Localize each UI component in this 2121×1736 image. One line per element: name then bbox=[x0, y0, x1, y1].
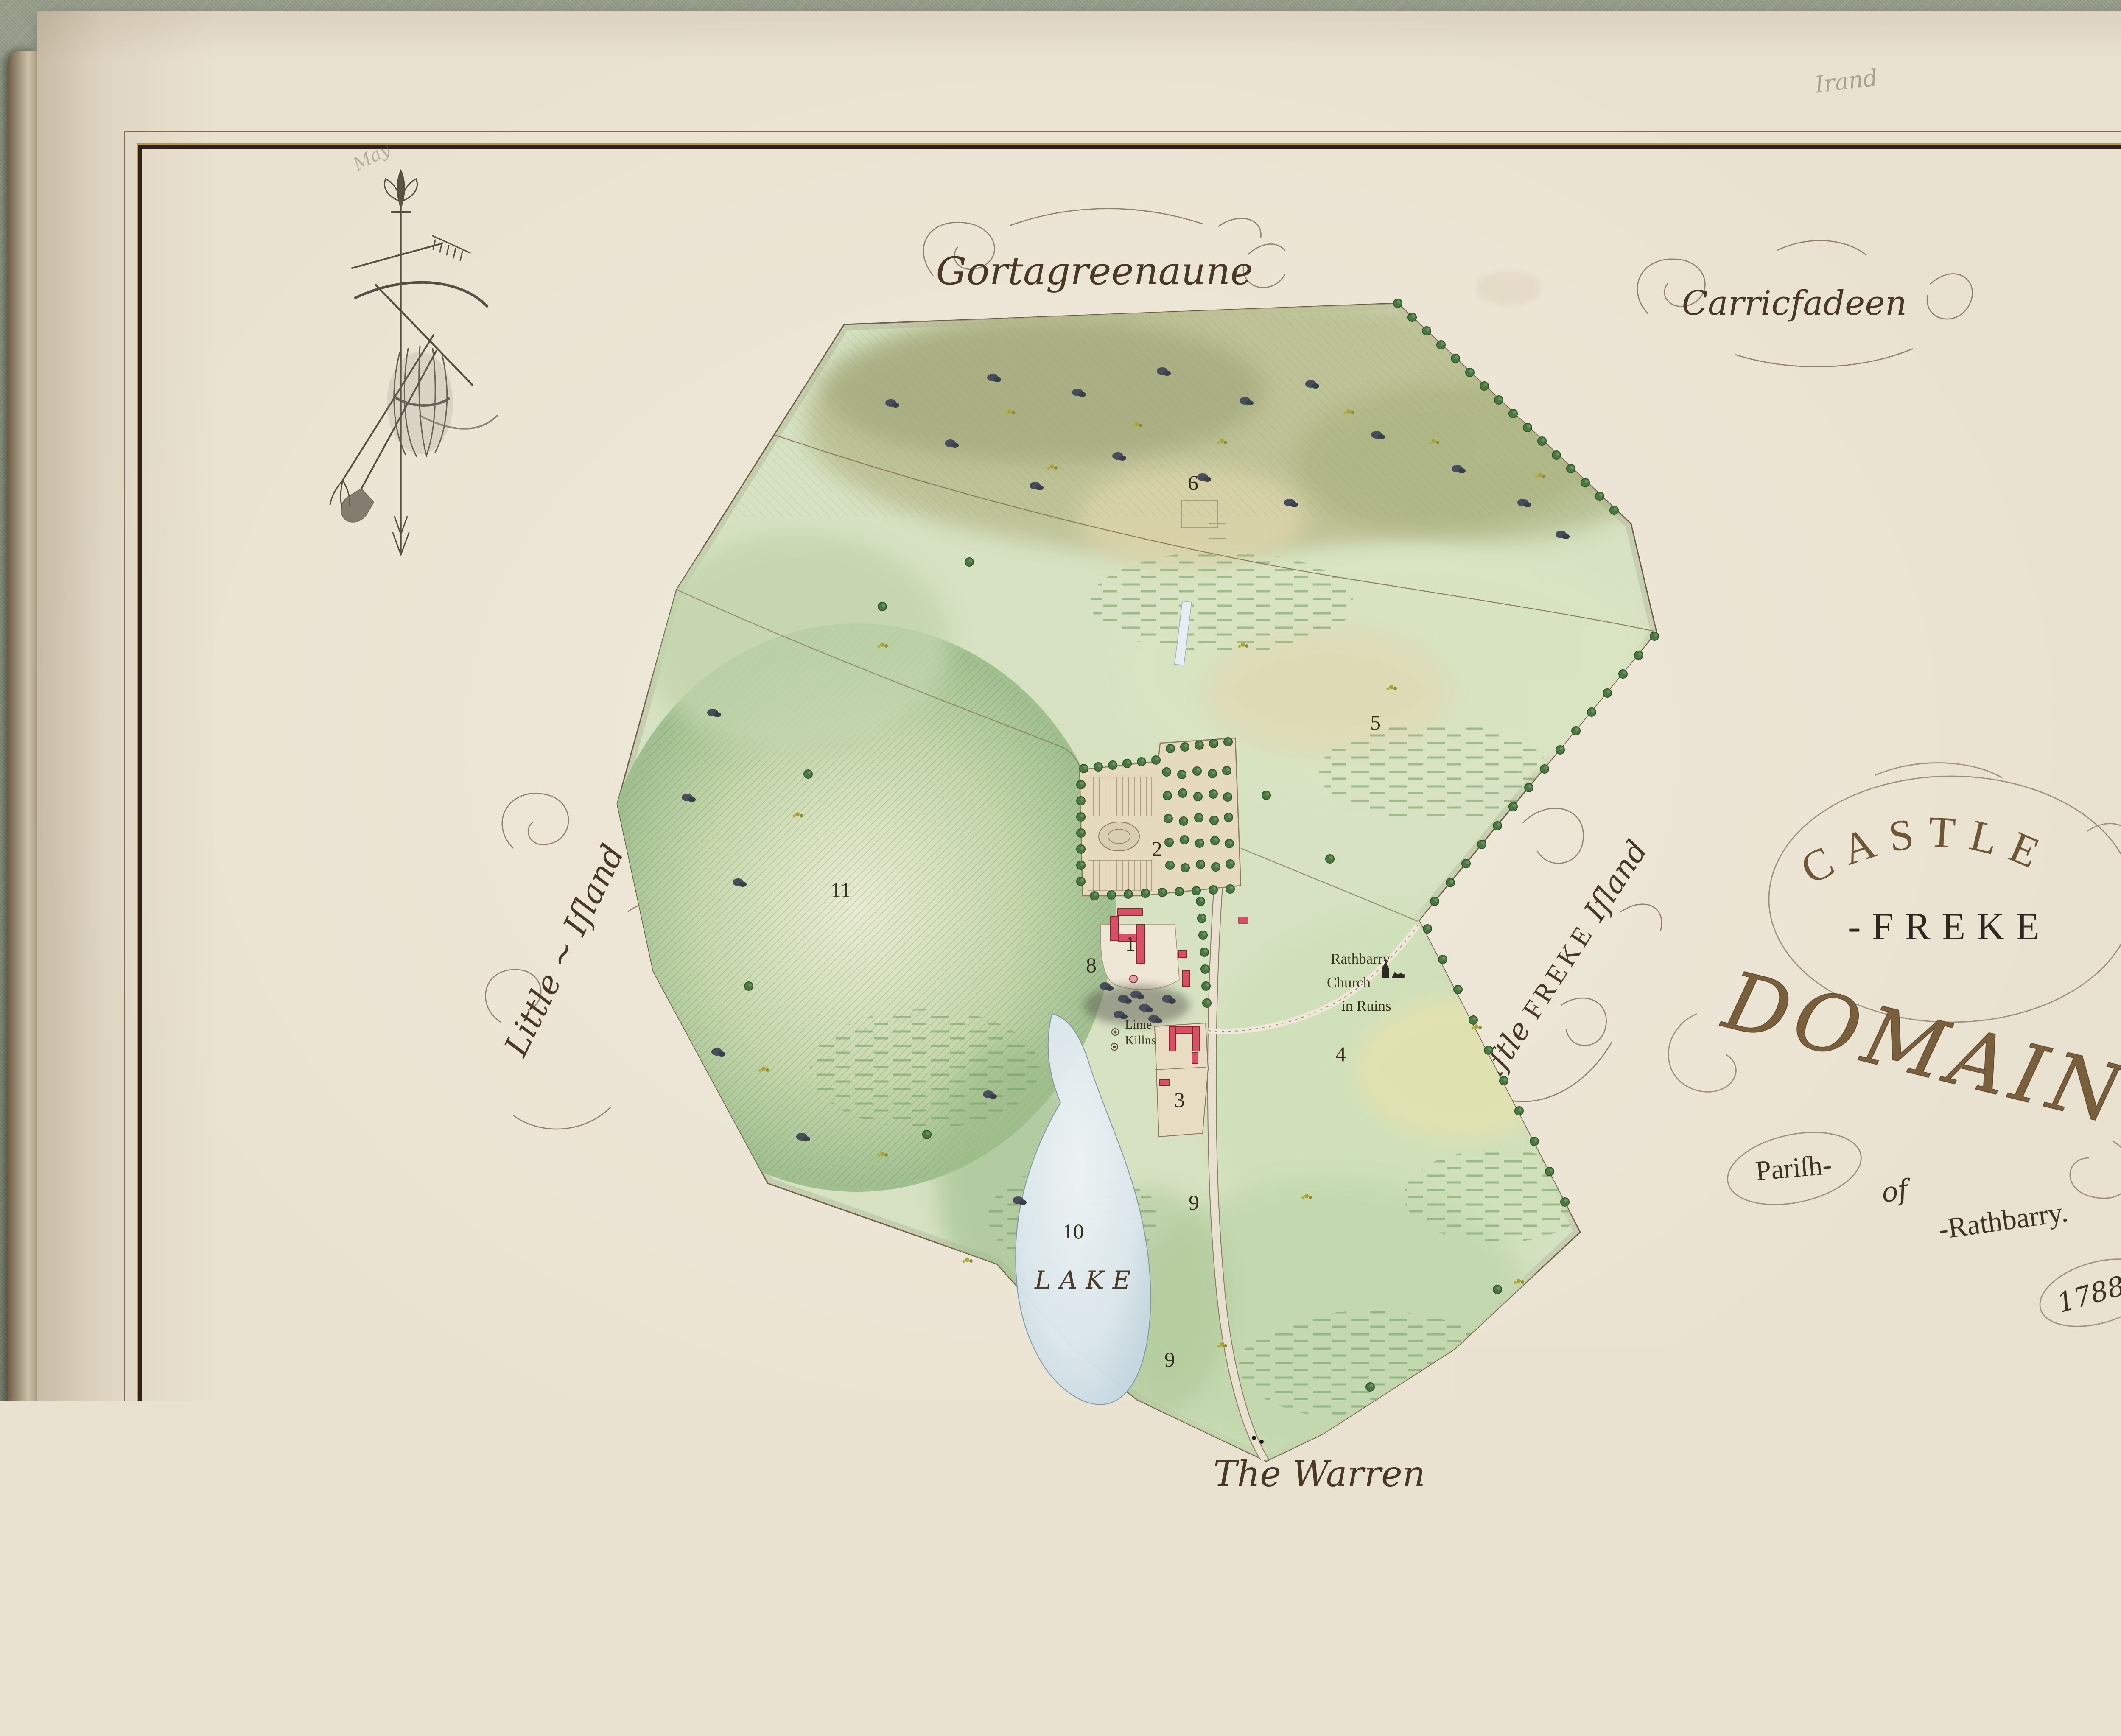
plot-number: 2 bbox=[1152, 837, 1162, 861]
scale-tick: 30 bbox=[452, 1520, 465, 1535]
title-line-domain: DOMAIN bbox=[1715, 953, 2121, 1143]
title-line-rathbarry: -Rathbarry. bbox=[1936, 1195, 2070, 1245]
copyright-text: © 2019 The Dean and Chapter of St. Facht… bbox=[0, 1687, 1961, 1720]
plot-number: 8 bbox=[1086, 953, 1097, 977]
scale-bar-rule: 0 10 20 30 40 bbox=[259, 1520, 512, 1546]
plot-number: 9 bbox=[1164, 1347, 1175, 1371]
plot-number: 10 bbox=[1063, 1219, 1084, 1243]
plot-number: 11 bbox=[831, 878, 851, 902]
svg-text:Lime: Lime bbox=[1125, 1018, 1152, 1032]
scale-numeral: XX bbox=[305, 1417, 351, 1451]
plot-number: 6 bbox=[1188, 471, 1198, 495]
plot-number: 1 bbox=[1125, 932, 1136, 956]
plot-number: 4 bbox=[1335, 1042, 1346, 1066]
title-line-of: of bbox=[1879, 1173, 1914, 1209]
north-arrow-ornament-icon bbox=[293, 153, 505, 577]
scale-tick: 10 bbox=[351, 1520, 365, 1535]
scale-tick: 0 bbox=[305, 1520, 311, 1535]
plot-number: 3 bbox=[1174, 1088, 1185, 1112]
scale-tick: 40 bbox=[498, 1520, 512, 1535]
svg-text:Killns: Killns bbox=[1125, 1033, 1156, 1047]
plot-number: 5 bbox=[1370, 710, 1381, 734]
paper-stain bbox=[509, 1569, 619, 1620]
farmyard-buildings bbox=[1155, 1023, 1208, 1137]
scanned-atlas-photo: { "page": { "folio_number": "1", "pencil… bbox=[0, 0, 2121, 1720]
gate-post bbox=[1252, 1436, 1256, 1440]
title-line-freke: -FREKE bbox=[1848, 905, 2051, 948]
svg-text:Church: Church bbox=[1327, 974, 1371, 991]
svg-text:Rathbarry: Rathbarry bbox=[1331, 950, 1390, 967]
estate-map: 6 5 11 2 1 8 3 4 9 9 10 LAKE Lime Killns… bbox=[585, 263, 1688, 1493]
gate-post bbox=[1259, 1440, 1264, 1444]
page-corner-shadow bbox=[40, 1514, 185, 1675]
copyright-watermark: © 2019 The Dean and Chapter of St. Facht… bbox=[0, 1687, 2121, 1720]
field-building bbox=[1239, 917, 1248, 923]
paper-stain bbox=[1879, 1544, 1956, 1582]
plot-number: 9 bbox=[1189, 1191, 1199, 1214]
scale-bar: XX Perches to an Inch 0 10 20 30 40 bbox=[238, 1374, 534, 1557]
title-cartouche: CASTLE -FREKE DOMAIN Pariſh- of -Rathbar… bbox=[1637, 759, 2121, 1353]
scale-caption: Perches to an Inch bbox=[289, 1459, 507, 1520]
title-line-year: 1788. bbox=[2054, 1268, 2121, 1319]
lake-label: LAKE bbox=[1034, 1266, 1139, 1294]
previous-page-curl bbox=[8, 51, 37, 1646]
title-line-castle: CASTLE bbox=[1793, 808, 2058, 894]
svg-text:in Ruins: in Ruins bbox=[1341, 998, 1391, 1014]
title-line-parish: Pariſh- bbox=[1754, 1149, 1833, 1186]
scale-tick: 20 bbox=[402, 1520, 415, 1535]
